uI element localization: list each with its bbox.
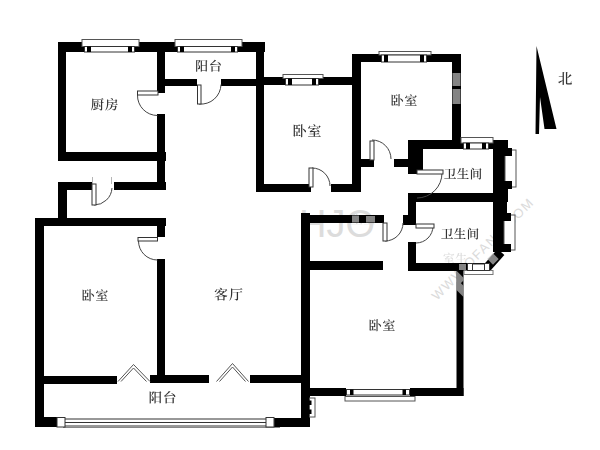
svg-text:HJO: HJO (299, 203, 375, 245)
